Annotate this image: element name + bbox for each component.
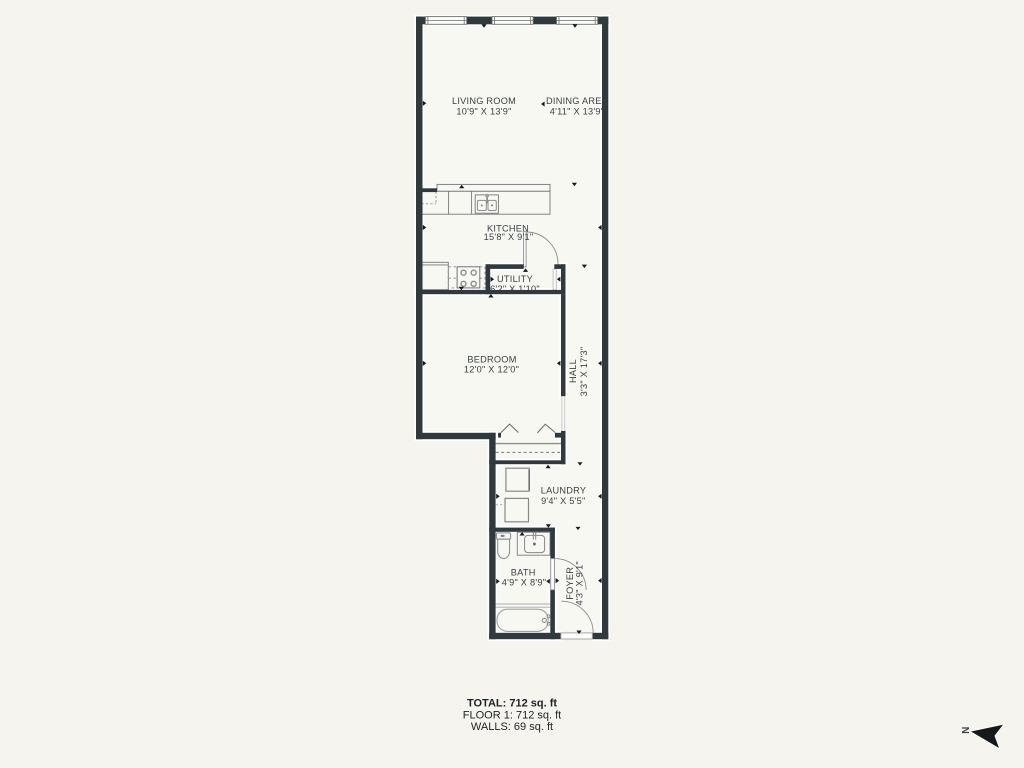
svg-text:15'8" X 9'1": 15'8" X 9'1" xyxy=(484,232,534,242)
svg-text:9'4" X 5'5": 9'4" X 5'5" xyxy=(541,496,585,506)
svg-text:DINING AREA: DINING AREA xyxy=(546,96,609,106)
svg-text:FLOOR 1: 712 sq. ft: FLOOR 1: 712 sq. ft xyxy=(463,709,561,721)
svg-text:UTILITY: UTILITY xyxy=(497,274,533,284)
svg-text:4'11" X 13'9": 4'11" X 13'9" xyxy=(550,107,605,117)
svg-text:WALLS: 69 sq. ft: WALLS: 69 sq. ft xyxy=(471,721,553,733)
svg-text:4'9" X 8'9": 4'9" X 8'9" xyxy=(502,577,546,587)
svg-text:LIVING ROOM: LIVING ROOM xyxy=(452,96,516,106)
svg-text:TOTAL: 712 sq. ft: TOTAL: 712 sq. ft xyxy=(467,698,557,710)
svg-text:3'3" X 17'3": 3'3" X 17'3" xyxy=(579,347,589,397)
svg-text:N: N xyxy=(959,727,970,734)
svg-text:HALL: HALL xyxy=(568,359,578,383)
svg-text:4'3" X 9'1": 4'3" X 9'1" xyxy=(575,561,585,605)
svg-text:10'9" X 13'9": 10'9" X 13'9" xyxy=(456,107,511,117)
svg-text:FOYER: FOYER xyxy=(565,567,575,600)
svg-text:BEDROOM: BEDROOM xyxy=(467,355,516,365)
svg-text:LAUNDRY: LAUNDRY xyxy=(541,486,587,496)
svg-text:BATH: BATH xyxy=(511,568,536,578)
svg-text:12'0" X 12'0": 12'0" X 12'0" xyxy=(464,365,519,375)
